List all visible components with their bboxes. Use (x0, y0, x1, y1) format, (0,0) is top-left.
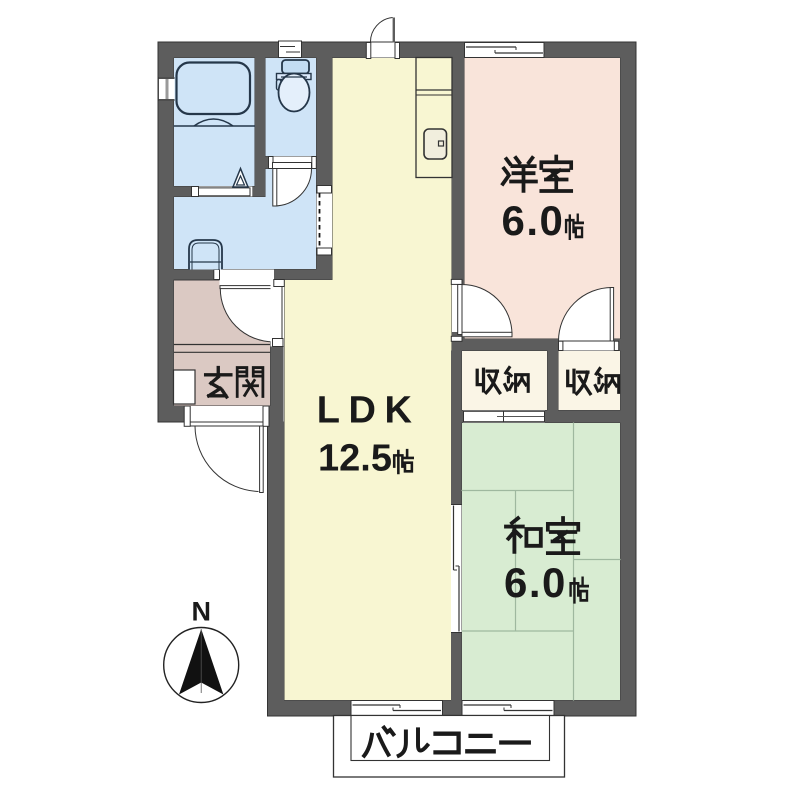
svg-text:LDK: LDK (317, 390, 421, 432)
svg-text:6.0: 6.0 (502, 197, 565, 244)
svg-text:6.0: 6.0 (504, 559, 567, 606)
svg-text:12.5: 12.5 (318, 438, 392, 480)
svg-text:N: N (191, 597, 211, 627)
